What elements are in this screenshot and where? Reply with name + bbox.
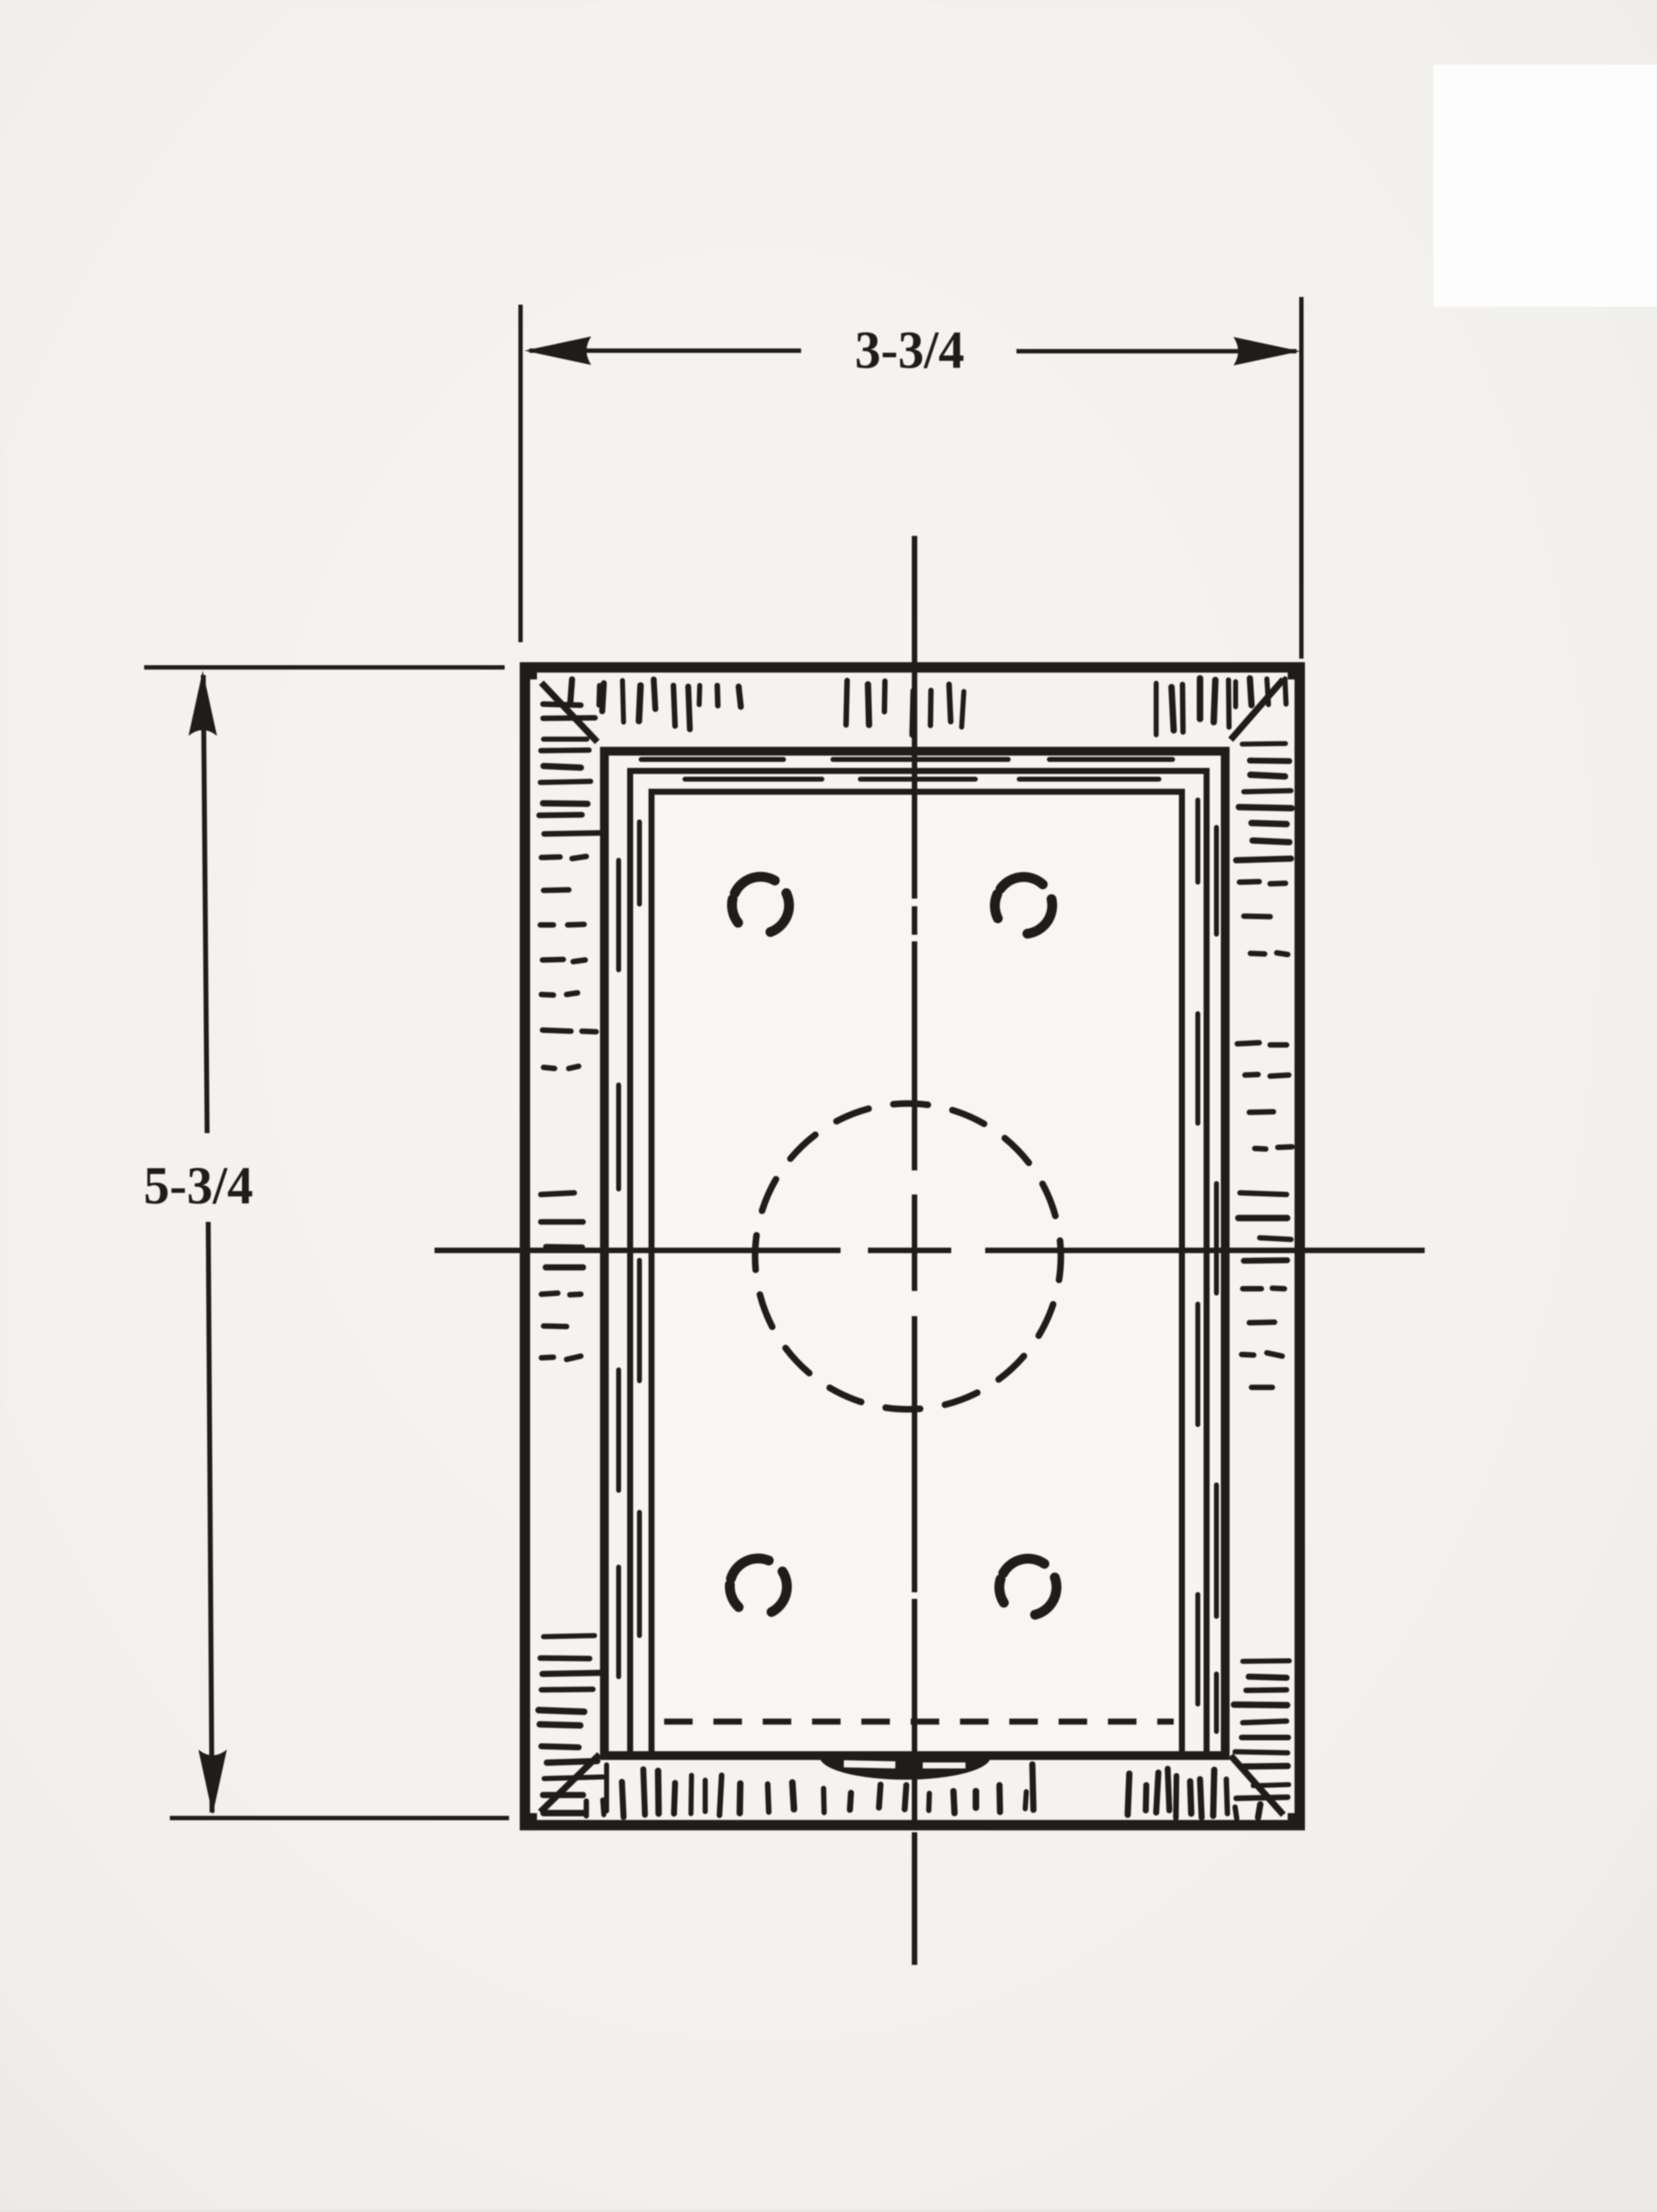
svg-text:5-3/4: 5-3/4 [144,1156,253,1215]
svg-text:3-3/4: 3-3/4 [855,321,964,379]
